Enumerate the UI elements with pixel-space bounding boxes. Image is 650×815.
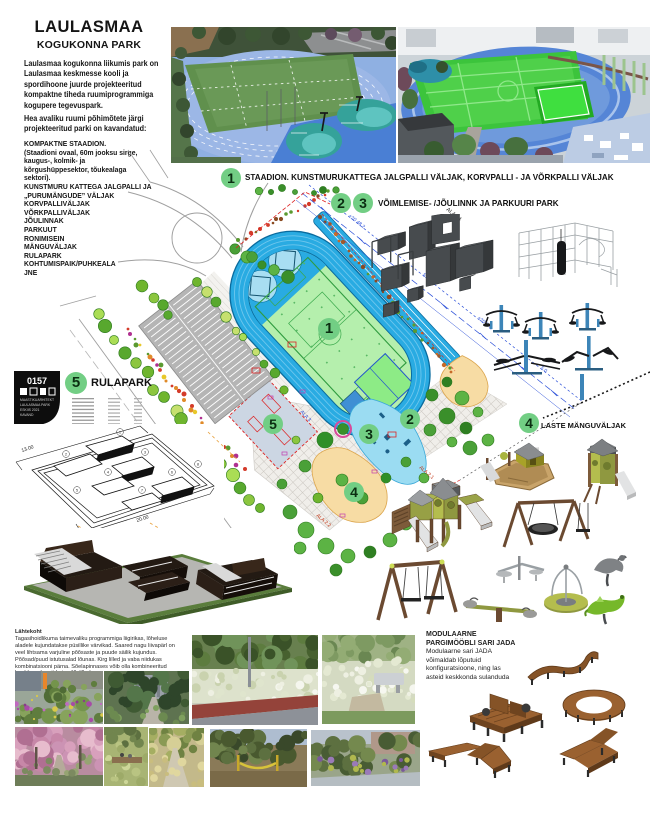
svg-text:~ 400.00.00: ~ 400.00.00 (518, 446, 540, 451)
svg-text:0157: 0157 (27, 376, 47, 386)
svg-text:LAULASMAA PARK: LAULASMAA PARK (20, 403, 51, 407)
svg-text:+20 48.2: +20 48.2 (347, 213, 366, 230)
svg-text:ESKIIS 2021: ESKIIS 2021 (20, 408, 40, 412)
svg-text:MAASTIKUARHITEKT: MAASTIKUARHITEKT (20, 398, 54, 402)
svg-text:KAVAND: KAVAND (20, 413, 34, 417)
